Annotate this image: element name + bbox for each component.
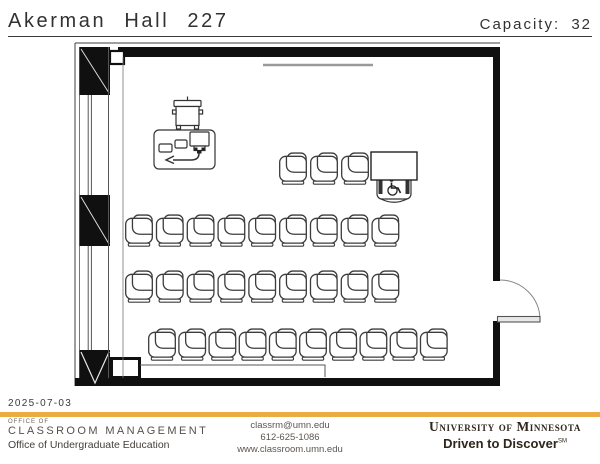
contact-email: classrm@umn.edu — [205, 420, 375, 432]
back-wall — [75, 378, 500, 386]
university-wordmark: University of Minnesota — [418, 419, 592, 435]
front-wall-notch — [110, 51, 124, 64]
service-mark: SM — [558, 439, 567, 445]
right-wall-lower — [493, 321, 500, 384]
footer-office-block: OFFICE OF CLASSROOM MANAGEMENT Office of… — [8, 419, 208, 451]
platform-edge — [140, 365, 325, 377]
console-item — [159, 144, 172, 152]
chair — [249, 271, 276, 302]
instructor-chair — [173, 97, 203, 130]
chair — [126, 271, 153, 302]
chair — [330, 329, 357, 360]
front-wall — [118, 47, 500, 57]
chair — [187, 271, 214, 302]
chair — [126, 215, 153, 246]
right-wall-upper — [493, 47, 500, 281]
chair — [390, 329, 417, 360]
chair — [300, 329, 327, 360]
chair — [310, 271, 337, 302]
chair — [156, 215, 183, 246]
chair — [280, 215, 307, 246]
accessible-table — [371, 152, 417, 180]
chair — [372, 215, 399, 246]
chair — [239, 329, 266, 360]
contact-website: www.classroom.umn.edu — [205, 444, 375, 456]
footer-brand-block: University of Minnesota Driven to Discov… — [418, 419, 592, 451]
chair — [372, 271, 399, 302]
chair — [149, 329, 176, 360]
chair — [156, 271, 183, 302]
accessible-station — [371, 152, 417, 202]
door-swing-arc — [500, 280, 540, 319]
footer-contact-block: classrm@umn.edu 612-625-1086 www.classro… — [205, 420, 375, 456]
av-console-table — [154, 130, 215, 169]
console-item — [175, 140, 187, 148]
classroom-management-label: CLASSROOM MANAGEMENT — [8, 426, 208, 437]
chair — [341, 215, 368, 246]
door — [498, 280, 541, 322]
chair — [311, 153, 338, 184]
chair — [342, 153, 369, 184]
undergraduate-education-label: Office of Undergraduate Education — [8, 440, 208, 451]
chair — [360, 329, 387, 360]
plan-date: 2025-07-03 — [8, 398, 72, 409]
contact-phone: 612-625-1086 — [205, 432, 375, 444]
monitor-icon — [190, 132, 209, 146]
tagline: Driven to DiscoverSM — [418, 436, 592, 451]
chair — [310, 215, 337, 246]
chair — [209, 329, 236, 360]
chair — [269, 329, 296, 360]
floor-plan-page: Akerman Hall 227 Capacity: 32 — [0, 0, 600, 464]
chair — [249, 215, 276, 246]
chair — [187, 215, 214, 246]
chair — [218, 215, 245, 246]
chair — [420, 329, 447, 360]
chair — [179, 329, 206, 360]
door-leaf — [498, 317, 541, 323]
floor-plan — [0, 0, 600, 464]
chair — [218, 271, 245, 302]
gold-bar — [0, 412, 600, 417]
back-wall-column — [112, 359, 140, 378]
chair — [280, 153, 307, 184]
chair — [341, 271, 368, 302]
chair — [280, 271, 307, 302]
